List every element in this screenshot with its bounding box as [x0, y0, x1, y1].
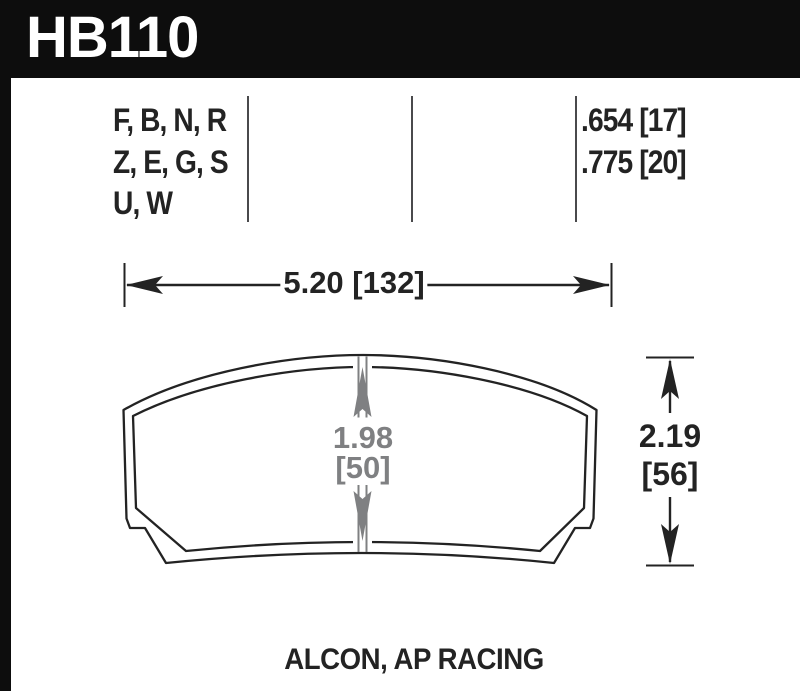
catalog-drawing-page: HB110 F, B, N, R Z, E, G, S U, W .654 [1… — [0, 0, 800, 691]
technical-drawing — [0, 0, 800, 691]
application-caption: ALCON, AP RACING — [284, 643, 543, 677]
overall-height-mm-label: [56] — [639, 458, 702, 492]
pad-height-mm-label: [50] — [332, 452, 393, 485]
width-dimension-label: 5.20 [132] — [280, 267, 427, 300]
overall-height-inches-label: 2.19 — [636, 420, 704, 454]
arrow-down-icon — [354, 491, 372, 541]
arrow-up-icon — [354, 367, 372, 417]
